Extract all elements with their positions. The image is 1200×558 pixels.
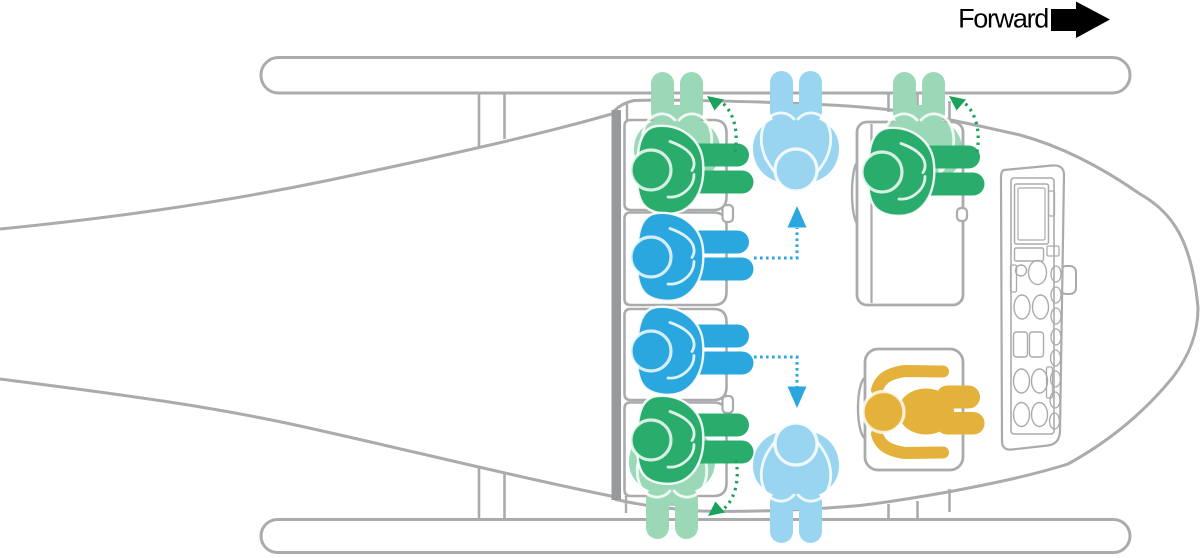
svg-text:Forward: Forward — [958, 4, 1048, 34]
